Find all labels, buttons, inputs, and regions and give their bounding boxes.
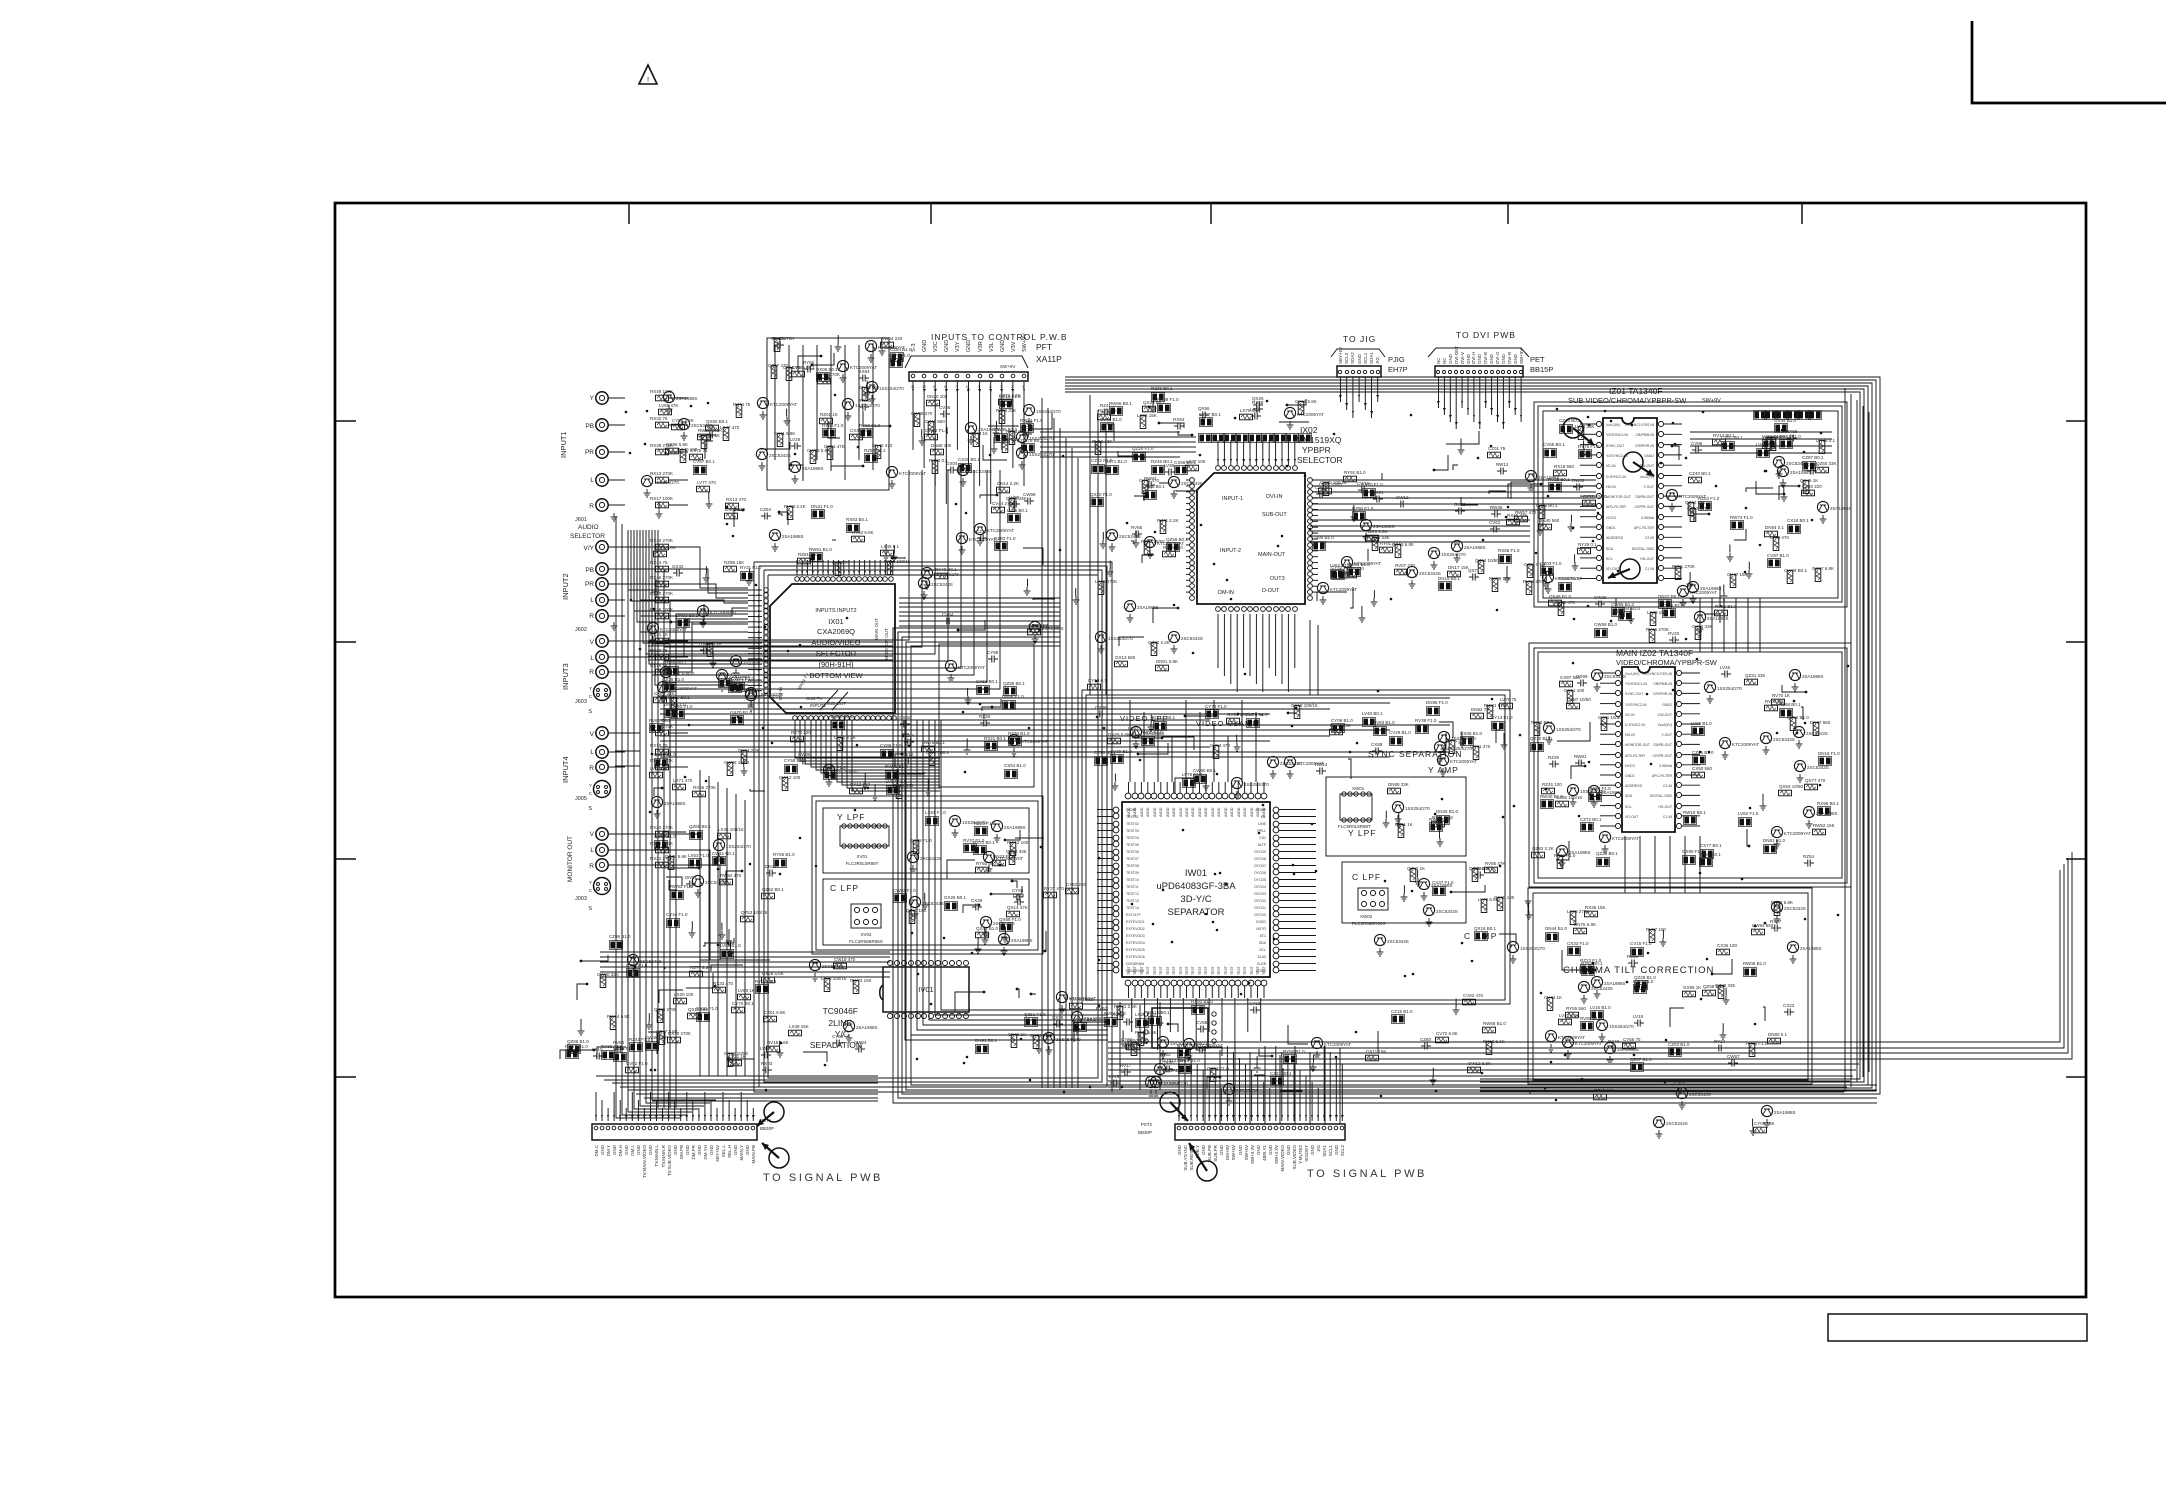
svg-text:EXT4LTF: EXT4LTF (1126, 913, 1141, 917)
svg-text:LX81 F1.0: LX81 F1.0 (925, 810, 946, 815)
svg-text:GND: GND (624, 1144, 629, 1155)
svg-text:RX46 270K: RX46 270K (650, 575, 673, 580)
svg-text:GX48: GX48 (1095, 705, 1107, 710)
svg-text:EXTEVOD4: EXTEVOD4 (1126, 941, 1145, 945)
svg-text:RZ39: RZ39 (1548, 755, 1560, 760)
svg-text:L: L (590, 477, 594, 484)
svg-text:OYCD4: OYCD4 (1254, 885, 1266, 889)
svg-text:RV85 47K: RV85 47K (1485, 861, 1505, 866)
svg-text:SCL2: SCL2 (1344, 352, 1349, 364)
svg-text:OYCD7: OYCD7 (1254, 864, 1266, 868)
svg-text:QZ62 B0.1: QZ62 B0.1 (762, 887, 784, 892)
svg-text:RZ23 5.6K: RZ23 5.6K (1366, 529, 1388, 534)
svg-text:CV94 B1.0: CV94 B1.0 (1312, 535, 1334, 540)
svg-text:AVDD: AVDD (1140, 807, 1144, 817)
svg-text:MONITOR OUT: MONITOR OUT (567, 836, 574, 882)
svg-text:TEST: TEST (1224, 965, 1228, 975)
svg-text:CY96 33K: CY96 33K (1692, 624, 1713, 629)
svg-text:RX20 75: RX20 75 (650, 648, 668, 653)
svg-text:LV45: LV45 (1109, 1074, 1120, 1079)
svg-text:CW98 10/50: CW98 10/50 (724, 760, 750, 765)
svg-text:GND: GND (1334, 1144, 1339, 1155)
svg-text:CB/PB-OUT: CB/PB-OUT (1653, 743, 1673, 747)
svg-text:OYCD0: OYCD0 (1254, 913, 1266, 917)
svg-text:NC: NC (1442, 357, 1447, 364)
svg-text:DN94 2.2K: DN94 2.2K (738, 748, 760, 753)
svg-text:TEST02: TEST02 (1126, 822, 1139, 826)
svg-text:DN52 75: DN52 75 (1471, 707, 1489, 712)
svg-text:J005: J005 (575, 796, 587, 802)
svg-text:GND2: GND2 (1644, 454, 1654, 458)
svg-text:KTC2009YAT: KTC2009YAT (660, 627, 687, 632)
svg-text:3.58Xtal: 3.58Xtal (1659, 764, 1672, 768)
svg-text:TEST: TEST (1243, 965, 1247, 975)
svg-text:SYNC-OUT: SYNC-OUT (1625, 692, 1644, 696)
svg-text:INPUT4: INPUT4 (561, 756, 570, 783)
svg-text:TEST: TEST (1250, 965, 1254, 975)
svg-text:LV60: LV60 (760, 1046, 771, 1051)
svg-text:OVDD: OVDD (1256, 920, 1267, 924)
svg-text:XW01: XW01 (1352, 786, 1365, 791)
svg-text:2SC5343S: 2SC5343S (1773, 737, 1795, 742)
svg-text:ADDRESS: ADDRESS (1625, 784, 1643, 788)
svg-text:TEST10: TEST10 (1126, 878, 1139, 882)
svg-text:LV60 470: LV60 470 (1770, 535, 1789, 540)
svg-text:SUB.PB: SUB.PB (1207, 1145, 1212, 1162)
svg-text:DM.C: DM.C (594, 1144, 599, 1156)
svg-text:DVI-H: DVI-H (1471, 352, 1476, 364)
svg-text:EXTEVOD2: EXTEVOD2 (1126, 927, 1145, 931)
svg-text:CZ45 560: CZ45 560 (925, 419, 945, 424)
svg-text:CR/PR/R-IN: CR/PR/R-IN (1635, 444, 1655, 448)
svg-text:AVDD: AVDD (1191, 807, 1195, 817)
svg-text:TEST: TEST (1166, 965, 1170, 975)
svg-text:CW88 47K: CW88 47K (911, 411, 933, 416)
svg-text:SUB VIDEO/CHROMA/YPBPR-SW: SUB VIDEO/CHROMA/YPBPR-SW (1568, 396, 1687, 405)
svg-text:TEST09: TEST09 (1126, 871, 1139, 875)
svg-text:RW12: RW12 (1496, 462, 1509, 467)
svg-text:1SS254/270: 1SS254/270 (1244, 782, 1269, 787)
svg-text:2SA1988S: 2SA1988S (1700, 586, 1722, 591)
svg-text:LV79 75: LV79 75 (1500, 697, 1517, 702)
svg-text:2SA1988S: 2SA1988S (1143, 731, 1165, 736)
svg-text:QX56: QX56 (1198, 406, 1210, 411)
svg-text:GX55: GX55 (1454, 502, 1466, 507)
svg-text:CW26: CW26 (1594, 595, 1607, 600)
svg-text:AVDD: AVDD (1250, 807, 1254, 817)
svg-text:GX90 F1.0: GX90 F1.0 (1682, 849, 1704, 854)
svg-text:TEST11: TEST11 (1126, 885, 1139, 889)
svg-text:SDA: SDA (1259, 941, 1267, 945)
svg-text:RY50 560: RY50 560 (976, 861, 996, 866)
svg-text:CX33 F1.0: CX33 F1.0 (1567, 941, 1589, 946)
svg-text:GND: GND (745, 1144, 750, 1155)
svg-text:QX86 5.6K: QX86 5.6K (666, 442, 688, 447)
svg-text:RZ54: RZ54 (1803, 854, 1815, 859)
svg-text:RZ29 B0.1: RZ29 B0.1 (1151, 386, 1173, 391)
svg-text:CY59: CY59 (832, 1034, 844, 1039)
svg-text:TEST: TEST (1133, 965, 1137, 975)
svg-text:CX75 75: CX75 75 (690, 448, 708, 453)
svg-text:RX98 B0.1: RX98 B0.1 (1817, 801, 1839, 806)
svg-text:SELECTOR: SELECTOR (570, 533, 605, 540)
svg-text:IX01: IX01 (828, 617, 843, 626)
svg-text:MONITOR-OUT: MONITOR-OUT (1606, 495, 1632, 499)
svg-text:RZ80: RZ80 (1627, 954, 1639, 959)
svg-text:QZ36 270K: QZ36 270K (654, 1007, 677, 1012)
svg-text:GX70 B1.0: GX70 B1.0 (730, 710, 753, 715)
svg-text:QZ07 B1.0: QZ07 B1.0 (1630, 1057, 1652, 1062)
svg-text:RY76 F1.0: RY76 F1.0 (1578, 444, 1600, 449)
svg-text:CW12 6.8K: CW12 6.8K (1468, 1061, 1491, 1066)
svg-text:DM.YH: DM.YH (703, 1145, 708, 1160)
svg-text:LX20 100: LX20 100 (674, 992, 694, 997)
svg-text:AVDD: AVDD (1204, 807, 1208, 817)
svg-text:CV15 F1.0: CV15 F1.0 (1630, 941, 1652, 946)
svg-text:RX33 470: RX33 470 (713, 981, 734, 986)
svg-text:2SC5343S: 2SC5343S (1119, 534, 1141, 539)
svg-text:CV36: CV36 (939, 405, 951, 410)
svg-text:RX11 5.6K: RX11 5.6K (1432, 815, 1453, 820)
svg-text:CY78 F1.0: CY78 F1.0 (1205, 704, 1227, 709)
svg-text:RX65 F1.0: RX65 F1.0 (1498, 548, 1520, 553)
svg-text:RY15 270K: RY15 270K (1646, 627, 1669, 632)
svg-text:CZ22 F1.0: CZ22 F1.0 (1091, 458, 1113, 463)
svg-text:ADDRESS: ADDRESS (1606, 536, 1624, 540)
svg-text:DN20 100: DN20 100 (927, 394, 948, 399)
svg-text:CW18 470: CW18 470 (834, 957, 856, 962)
svg-text:D-SYNC2-IN: D-SYNC2-IN (1625, 723, 1646, 727)
svg-text:1SS254/270: 1SS254/270 (726, 844, 751, 849)
svg-text:MONITOR-OUT: MONITOR-OUT (1625, 743, 1651, 747)
svg-text:CV62: CV62 (1489, 520, 1501, 525)
svg-text:LX37 100: LX37 100 (1186, 459, 1206, 464)
svg-text:CV82 470: CV82 470 (1463, 993, 1484, 998)
svg-text:YPBPR: YPBPR (1302, 445, 1331, 455)
svg-text:GND: GND (697, 1144, 702, 1155)
svg-text:RX21 B0.1: RX21 B0.1 (973, 840, 995, 845)
svg-text:J601: J601 (575, 517, 587, 523)
svg-text:QZ68 B0.1: QZ68 B0.1 (689, 824, 711, 829)
svg-text:INPUT2: INPUT2 (561, 573, 570, 600)
svg-text:RV62 33K: RV62 33K (1092, 439, 1112, 444)
svg-text:CV54: CV54 (942, 612, 954, 617)
svg-text:TEST: TEST (1146, 965, 1150, 975)
svg-text:GND: GND (1238, 1144, 1243, 1155)
svg-text:QZ42 33K: QZ42 33K (1685, 500, 1706, 505)
svg-text:2SC5343S: 2SC5343S (1689, 1092, 1711, 1097)
svg-text:QZ86 B1.0: QZ86 B1.0 (567, 1039, 589, 1044)
svg-text:GND: GND (673, 1144, 678, 1155)
svg-text:IV01: IV01 (918, 985, 933, 994)
svg-text:QZ69 B1.0: QZ69 B1.0 (654, 834, 676, 839)
svg-text:J603: J603 (575, 699, 587, 705)
svg-text:GX11 15K: GX11 15K (1366, 1049, 1386, 1054)
svg-text:SW+9V: SW+9V (1000, 364, 1015, 369)
svg-text:SW+2.5V: SW+2.5V (1274, 1145, 1279, 1164)
svg-text:RW66 B1.0: RW66 B1.0 (1483, 1021, 1506, 1026)
svg-text:IW01: IW01 (1185, 868, 1207, 879)
svg-text:AVDD: AVDD (1172, 807, 1176, 817)
svg-text:2SC5343S: 2SC5343S (836, 769, 858, 774)
svg-text:TO DVI PWB: TO DVI PWB (1456, 330, 1516, 340)
svg-text:GND: GND (1448, 353, 1453, 364)
svg-text:NSTO: NSTO (1256, 927, 1266, 931)
svg-text:AVDD: AVDD (1198, 807, 1202, 817)
svg-text:RV25 B0.1: RV25 B0.1 (1548, 477, 1570, 482)
svg-text:TO SIGNAL PWB: TO SIGNAL PWB (1307, 1168, 1427, 1180)
svg-text:QZ83 2.2K: QZ83 2.2K (1532, 846, 1554, 851)
svg-text:RX13 270K: RX13 270K (650, 471, 673, 476)
svg-text:DN81 B1.0: DN81 B1.0 (1763, 838, 1786, 843)
svg-text:RW06 B1.0: RW06 B1.0 (1743, 961, 1766, 966)
svg-text:CY62 5.6K: CY62 5.6K (1295, 399, 1317, 404)
svg-text:RV57 100: RV57 100 (1646, 927, 1666, 932)
svg-text:AVDD: AVDD (1256, 807, 1260, 817)
svg-text:QX48 B1.0: QX48 B1.0 (976, 926, 999, 931)
svg-text:TEST: TEST (1179, 965, 1183, 975)
svg-text:LV46: LV46 (1720, 665, 1731, 670)
svg-text:LV99 470: LV99 470 (650, 766, 669, 771)
svg-text:uPD64083GF-3BA: uPD64083GF-3BA (1156, 881, 1236, 892)
svg-text:DN01 6.8K: DN01 6.8K (1156, 659, 1178, 664)
svg-text:KTC2009YAT: KTC2009YAT (1324, 1042, 1351, 1047)
svg-text:2SA1988S: 2SA1988S (1011, 938, 1033, 943)
svg-text:CY07 B0.1: CY07 B0.1 (1199, 412, 1221, 417)
svg-text:KTC2009YAT: KTC2009YAT (850, 365, 877, 370)
svg-text:LV28: LV28 (790, 437, 801, 442)
svg-text:RY27: RY27 (1714, 1039, 1726, 1044)
svg-text:GX04: GX04 (946, 461, 958, 466)
svg-text:JIG: JIG (1375, 356, 1380, 364)
svg-text:XA11P: XA11P (1036, 354, 1062, 364)
svg-text:BB30P: BB30P (760, 1126, 774, 1131)
svg-text:SCL2: SCL2 (1340, 1145, 1345, 1157)
svg-text:Y2/SYNC2-IN: Y2/SYNC2-IN (1625, 703, 1647, 707)
svg-text:CZ45 B1.0: CZ45 B1.0 (1692, 750, 1714, 755)
svg-text:RZ74 220: RZ74 220 (791, 730, 811, 735)
svg-text:AVDD: AVDD (1230, 807, 1234, 817)
svg-text:RZ38: RZ38 (979, 714, 991, 719)
svg-text:2SC5343S: 2SC5343S (1666, 1121, 1688, 1126)
svg-text:KTC2009YAT: KTC2009YAT (1784, 831, 1811, 836)
svg-text:GND: GND (1489, 353, 1494, 364)
svg-text:TV.MAIN.L: TV.MAIN.L (654, 1145, 659, 1167)
svg-text:QZ79 6.8K: QZ79 6.8K (654, 545, 676, 550)
svg-text:GND1: GND1 (1625, 774, 1635, 778)
svg-text:DVI-R: DVI-R (1507, 351, 1512, 364)
svg-text:SDA: SDA (1625, 794, 1633, 798)
svg-text:GX12 B0.1: GX12 B0.1 (1153, 715, 1176, 720)
svg-text:2SA1988S: 2SA1988S (1004, 825, 1026, 830)
svg-text:2SA1988S: 2SA1988S (802, 466, 824, 471)
svg-text:PR: PR (585, 449, 594, 456)
svg-text:QZ02 2.2K: QZ02 2.2K (1148, 640, 1170, 645)
svg-text:2SC5343S: 2SC5343S (1436, 909, 1458, 914)
svg-text:J003: J003 (575, 896, 587, 902)
svg-text:EXTEVOD3: EXTEVOD3 (1126, 934, 1145, 938)
svg-text:KTC2009YAT: KTC2009YAT (1021, 739, 1048, 744)
svg-text:DN07 560: DN07 560 (1810, 720, 1831, 725)
svg-text:R: R (589, 765, 594, 772)
svg-text:QZ20 F1.0: QZ20 F1.0 (1132, 446, 1154, 451)
svg-text:QX71: QX71 (1468, 568, 1480, 573)
svg-text:TEST: TEST (1262, 965, 1266, 975)
svg-text:AVDD: AVDD (1185, 807, 1189, 817)
svg-text:CX36 100: CX36 100 (1717, 943, 1738, 948)
svg-text:KTC2009YAT: KTC2009YAT (958, 665, 985, 670)
svg-text:CZ70 B0.1: CZ70 B0.1 (1094, 750, 1116, 755)
svg-text:DM-IN: DM-IN (1218, 590, 1234, 596)
svg-text:CLKB: CLKB (1257, 962, 1267, 966)
svg-text:QZ08 B0.1: QZ08 B0.1 (1143, 484, 1165, 489)
svg-text:VIDEO/CHROMA/YPBPR-SW: VIDEO/CHROMA/YPBPR-SW (1616, 658, 1718, 667)
svg-text:RY62 6.8K: RY62 6.8K (852, 530, 874, 535)
svg-text:SW+3.3V: SW+3.3V (1250, 1145, 1255, 1164)
svg-text:CX11 6.8K: CX11 6.8K (774, 431, 795, 436)
svg-text:CZ60: CZ60 (1420, 1037, 1432, 1042)
svg-text:1SS254/270: 1SS254/270 (1405, 806, 1430, 811)
svg-text:DVI-IN: DVI-IN (1266, 494, 1283, 500)
svg-text:AVDD: AVDD (1146, 807, 1150, 817)
svg-text:C LFP: C LFP (830, 883, 859, 893)
svg-text:CY88 F1.0: CY88 F1.0 (880, 743, 902, 748)
svg-text:CX30 B0.1: CX30 B0.1 (958, 457, 980, 462)
svg-text:RX34 75: RX34 75 (650, 560, 668, 565)
svg-text:QX29: QX29 (1252, 396, 1264, 401)
svg-text:RX19 560: RX19 560 (1554, 464, 1575, 469)
svg-text:LV40 B0.1: LV40 B0.1 (1362, 711, 1383, 716)
svg-text:DN80 B0.1: DN80 B0.1 (831, 714, 854, 719)
svg-text:1SS254/270: 1SS254/270 (1556, 727, 1581, 732)
svg-text:S: S (588, 906, 592, 912)
svg-text:KTC2009YAT: KTC2009YAT (899, 471, 926, 476)
svg-text:CV72 6.8K: CV72 6.8K (1436, 1031, 1458, 1036)
svg-text:TEST: TEST (1191, 965, 1195, 975)
svg-text:RY63 F1.0: RY63 F1.0 (822, 423, 844, 428)
svg-text:GND: GND (944, 340, 950, 352)
svg-text:CZ31 B0.1: CZ31 B0.1 (1270, 1071, 1292, 1076)
svg-text:QX45 1K: QX45 1K (1800, 478, 1818, 483)
svg-text:3D-Y/C: 3D-Y/C (1180, 894, 1211, 905)
svg-text:2SC5343S: 2SC5343S (931, 582, 953, 587)
svg-text:SW+9V: SW+9V (1022, 333, 1028, 352)
svg-text:2LINE: 2LINE (828, 1018, 852, 1028)
svg-text:LX08 100/16: LX08 100/16 (821, 976, 847, 981)
svg-text:QX16 B0.1: QX16 B0.1 (1474, 926, 1497, 931)
svg-text:CW82 F1.0: CW82 F1.0 (925, 428, 948, 433)
svg-text:1SS254/270: 1SS254/270 (879, 386, 904, 391)
svg-text:CZ61 6.8K: CZ61 6.8K (764, 1010, 786, 1015)
svg-text:CX39: CX39 (971, 898, 983, 903)
svg-text:MAIN.VIDEO: MAIN.VIDEO (1280, 1145, 1285, 1172)
svg-text:QZ95 B1.0: QZ95 B1.0 (654, 752, 676, 757)
svg-text:TEST: TEST (1140, 965, 1144, 975)
svg-text:CV29 B1.0: CV29 B1.0 (1389, 730, 1411, 735)
svg-text:SW+9V: SW+9V (1519, 349, 1524, 364)
svg-text:TEST: TEST (1127, 965, 1131, 975)
svg-text:D-OUT: D-OUT (1262, 588, 1280, 594)
svg-text:LV53 F1.0: LV53 F1.0 (1633, 979, 1654, 984)
svg-text:TEST03: TEST03 (1126, 829, 1139, 833)
svg-text:RW52 15K: RW52 15K (1813, 823, 1835, 828)
svg-text:1SS254/270: 1SS254/270 (654, 480, 679, 485)
svg-text:QX80 100/16: QX80 100/16 (1320, 480, 1347, 485)
svg-text:MONITOR OUT: MONITOR OUT (884, 628, 889, 660)
svg-text:RZ26 10/50: RZ26 10/50 (1141, 539, 1165, 544)
svg-text:Y: Y (589, 880, 592, 885)
svg-text:DIGITAL-GND: DIGITAL-GND (1650, 794, 1673, 798)
svg-text:SEL.L: SEL.L (721, 1145, 726, 1158)
svg-text:QX11 560: QX11 560 (688, 1007, 708, 1012)
svg-text:LX89 15K: LX89 15K (1647, 610, 1667, 615)
svg-text:2SC5343S: 2SC5343S (1604, 674, 1626, 679)
svg-text:TEST: TEST (1211, 965, 1215, 975)
svg-text:KTC2009YAT: KTC2009YAT (1297, 761, 1324, 766)
svg-text:V/Y: V/Y (584, 545, 595, 552)
svg-text:GND: GND (612, 1144, 617, 1155)
svg-text:RZ71 2.2K: RZ71 2.2K (1157, 518, 1179, 523)
svg-text:CV44 1K: CV44 1K (1544, 995, 1562, 1000)
svg-text:QX78 5.6K: QX78 5.6K (665, 854, 687, 859)
svg-text:KTC2009YAT: KTC2009YAT (1555, 576, 1582, 581)
svg-text:2SC5343S: 2SC5343S (640, 959, 662, 964)
svg-text:KTC2009YAT: KTC2009YAT (987, 528, 1014, 533)
svg-text:TEST: TEST (1185, 965, 1189, 975)
svg-text:CY56 75: CY56 75 (1623, 1037, 1641, 1042)
svg-text:CZ03 B1.0: CZ03 B1.0 (1668, 1042, 1690, 1047)
svg-text:CW04 220: CW04 220 (881, 336, 903, 341)
svg-text:TEST13: TEST13 (1126, 899, 1139, 903)
svg-text:RZ90 F1.0: RZ90 F1.0 (1352, 506, 1374, 511)
svg-text:DN91 B0.1: DN91 B0.1 (975, 1038, 998, 1043)
svg-text:RW41 2.2K: RW41 2.2K (1114, 1004, 1137, 1009)
svg-text:V3C: V3C (933, 341, 939, 352)
svg-text:RV17: RV17 (1120, 1063, 1132, 1068)
svg-text:QZ98 100: QZ98 100 (1703, 984, 1724, 989)
svg-text:QZ52 1K: QZ52 1K (1407, 866, 1425, 871)
svg-text:TEST: TEST (1256, 965, 1260, 975)
svg-text:DN68 560: DN68 560 (859, 385, 880, 390)
svg-text:RW83 F1.0: RW83 F1.0 (670, 884, 693, 889)
svg-text:MAIN.PB: MAIN.PB (751, 1145, 756, 1164)
svg-text:AVDD: AVDD (1224, 807, 1228, 817)
svg-text:CS1: CS1 (1259, 836, 1266, 840)
svg-text:CV96 B1.0: CV96 B1.0 (1662, 603, 1684, 608)
svg-text:2SC5343S: 2SC5343S (769, 453, 791, 458)
svg-text:CW11 B0.1: CW11 B0.1 (712, 851, 735, 856)
svg-text:TO SIGNAL PWB: TO SIGNAL PWB (763, 1172, 883, 1184)
svg-text:DN25 5.6K: DN25 5.6K (1108, 732, 1130, 737)
svg-text:CW87 B0.1: CW87 B0.1 (1073, 1017, 1097, 1022)
svg-text:SLA0: SLA0 (1257, 955, 1266, 959)
svg-text:SCL1: SCL1 (1363, 352, 1368, 364)
svg-text:2SA1988S: 2SA1988S (782, 534, 804, 539)
svg-text:GX13 560: GX13 560 (1115, 655, 1136, 660)
svg-text:2SC5343S: 2SC5343S (970, 469, 992, 474)
svg-text:GX51 47K: GX51 47K (824, 444, 845, 449)
svg-text:9: 9 (933, 385, 935, 389)
svg-text:DM+9V: DM+9V (1225, 1145, 1230, 1160)
svg-text:CW69 B1.0: CW69 B1.0 (1594, 622, 1618, 627)
svg-text:OYCD9: OYCD9 (1254, 850, 1266, 854)
svg-text:DVI-B: DVI-B (1483, 352, 1488, 364)
svg-text:KTC2009YAT: KTC2009YAT (1732, 742, 1759, 747)
svg-text:EXTEVOD1: EXTEVOD1 (1126, 920, 1145, 924)
svg-text:TEST04: TEST04 (1126, 836, 1139, 840)
svg-text:SW+5V: SW+5V (1244, 1145, 1249, 1160)
svg-text:RX60 100/16: RX60 100/16 (884, 559, 911, 564)
